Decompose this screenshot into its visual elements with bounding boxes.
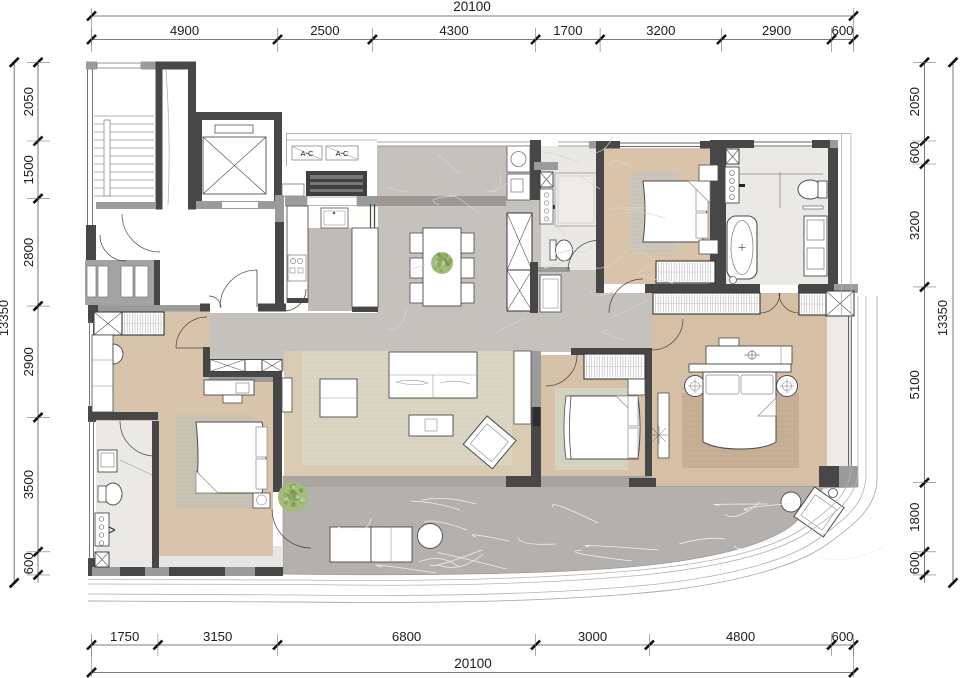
- svg-text:3500: 3500: [21, 470, 36, 499]
- svg-text:2800: 2800: [21, 238, 36, 267]
- svg-text:20100: 20100: [454, 656, 492, 671]
- svg-text:13350: 13350: [0, 300, 11, 336]
- svg-text:1750: 1750: [110, 629, 139, 644]
- svg-text:600: 600: [907, 141, 922, 163]
- svg-text:4300: 4300: [439, 23, 468, 38]
- svg-text:600: 600: [831, 629, 853, 644]
- svg-text:600: 600: [21, 552, 36, 574]
- svg-text:5100: 5100: [907, 370, 922, 399]
- svg-text:2500: 2500: [310, 23, 339, 38]
- svg-text:1800: 1800: [907, 503, 922, 532]
- svg-text:20100: 20100: [453, 0, 491, 14]
- svg-text:4800: 4800: [726, 629, 755, 644]
- svg-text:A-C: A-C: [301, 149, 315, 158]
- svg-text:2900: 2900: [762, 23, 791, 38]
- svg-text:3000: 3000: [578, 629, 607, 644]
- svg-text:3200: 3200: [907, 211, 922, 240]
- svg-text:600: 600: [831, 23, 853, 38]
- svg-text:6800: 6800: [392, 629, 421, 644]
- svg-text:3200: 3200: [646, 23, 675, 38]
- svg-text:13350: 13350: [935, 300, 950, 336]
- svg-text:4900: 4900: [170, 23, 199, 38]
- svg-text:2900: 2900: [21, 347, 36, 376]
- svg-text:600: 600: [907, 552, 922, 574]
- svg-text:A-C: A-C: [336, 149, 350, 158]
- svg-text:1700: 1700: [553, 23, 582, 38]
- svg-text:1500: 1500: [21, 155, 36, 184]
- svg-text:2050: 2050: [21, 87, 36, 116]
- svg-text:3150: 3150: [203, 629, 232, 644]
- svg-text:2050: 2050: [907, 87, 922, 116]
